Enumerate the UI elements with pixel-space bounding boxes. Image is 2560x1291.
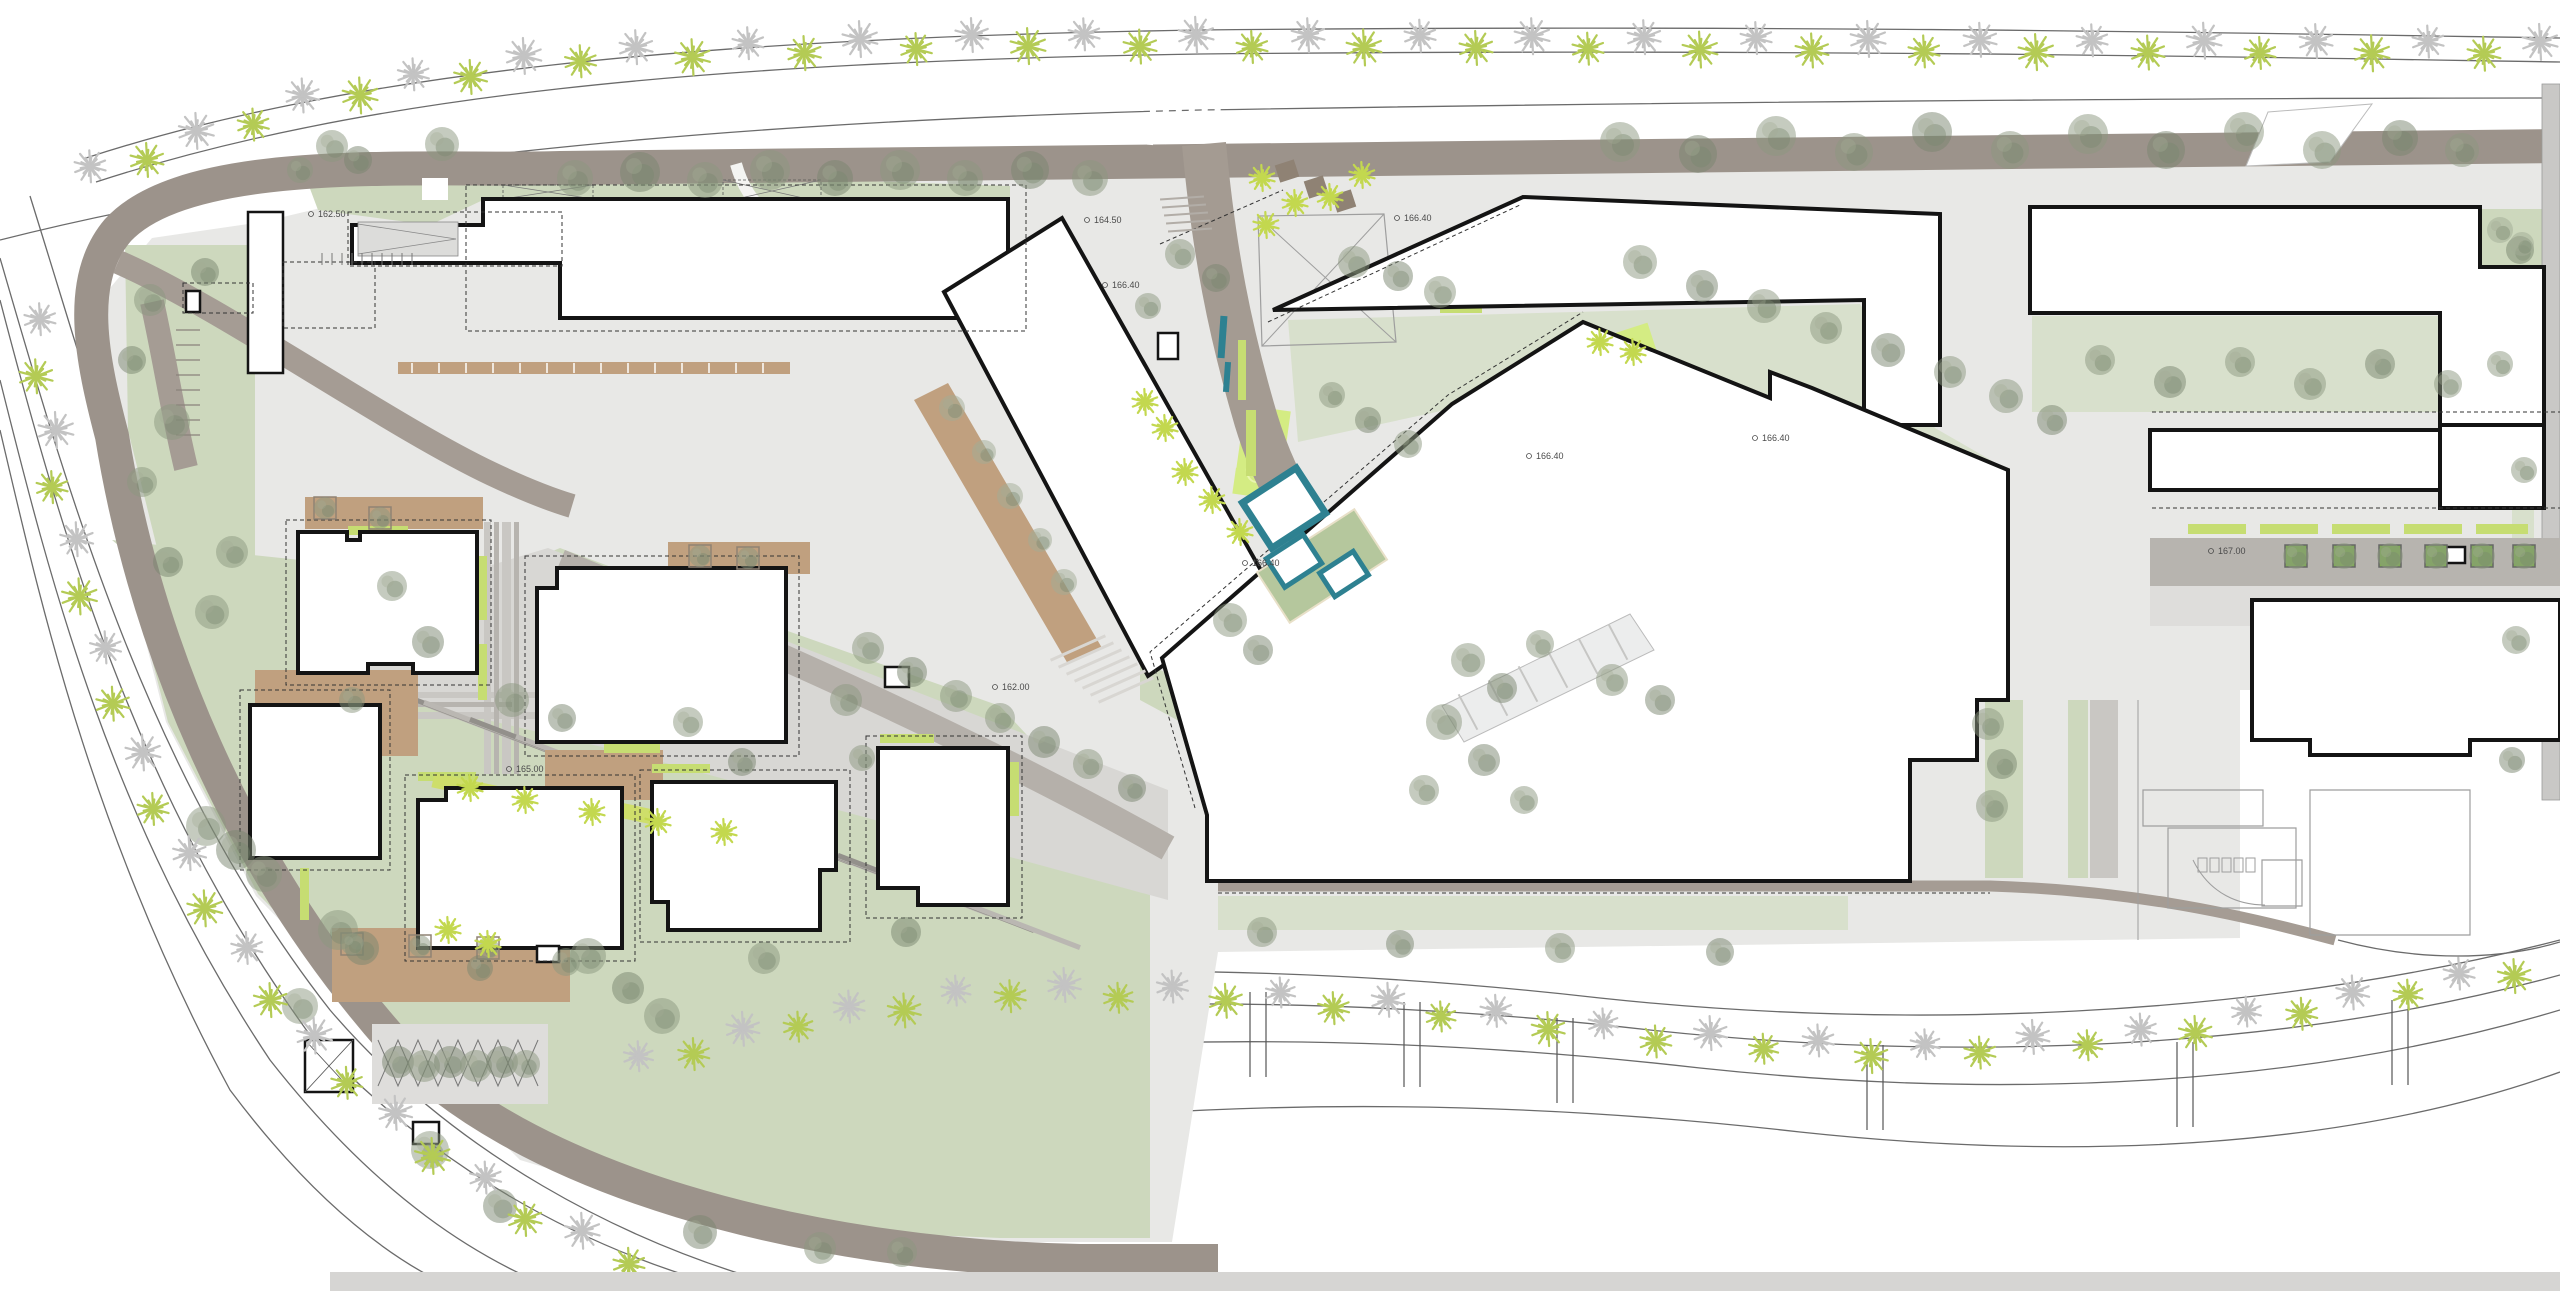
spot-level-label: 162.00 — [1002, 682, 1030, 692]
spot-level-label: 164.50 — [1094, 215, 1122, 225]
spot-level-label: 166.40 — [1112, 280, 1140, 290]
ramp — [358, 222, 458, 256]
site-plan: Architectural landscape site plan: campu… — [0, 0, 2560, 1291]
spot-level-label: 166.40 — [1536, 451, 1564, 461]
spot-level-label: 162.50 — [318, 209, 346, 219]
bottom-street-band — [330, 1272, 2560, 1291]
spot-level-label: 166.40 — [1252, 558, 1280, 568]
spot-level-label: 166.40 — [1404, 213, 1432, 223]
spot-level-label: 165.00 — [516, 764, 544, 774]
site-plan-svg: 162.50164.50166.40166.40166.40166.40165.… — [0, 0, 2560, 1291]
white-notch — [422, 178, 448, 200]
spot-level-label: 167.00 — [2218, 546, 2246, 556]
spot-level-label: 166.40 — [1762, 433, 1790, 443]
